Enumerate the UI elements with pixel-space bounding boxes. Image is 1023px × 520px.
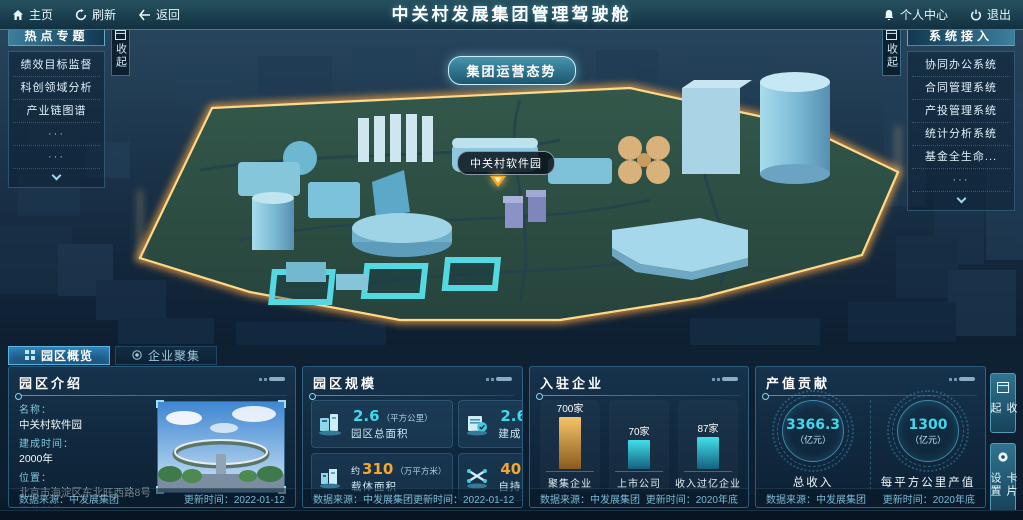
bar-value-label: 700家 (557, 400, 584, 415)
field-value: 中关村软件园 (19, 417, 147, 432)
tab-label: 企业聚集 (148, 347, 200, 364)
gauge-total-revenue: 3366.3 （亿元） 总收入 (756, 400, 870, 490)
park-name-tag[interactable]: 中关村软件园 (457, 151, 555, 175)
chevron-down-icon (956, 193, 966, 203)
gauge-ring: 3366.3 （亿元） (782, 400, 844, 462)
bar-baseline (615, 471, 663, 472)
panel-header-decoration (486, 377, 512, 381)
power-icon (970, 9, 982, 21)
bar (697, 437, 719, 469)
system-item[interactable]: 基金全生命... (912, 146, 1010, 169)
collapse-label: 收起 (113, 43, 129, 69)
system-access-expand-button[interactable] (912, 192, 1010, 208)
collapse-label: 收起 (884, 43, 900, 69)
stat-value: 2.6 (353, 407, 380, 425)
stat-unit: （万平方米） (395, 465, 446, 477)
map-3d-scene[interactable]: 集团运营态势 中关村软件园 (0, 30, 1023, 346)
dock-collapse-label: 收起 (987, 402, 1019, 426)
panel-title: 园区规模 (313, 376, 377, 391)
bar-column[interactable]: 70家上市公司 (609, 400, 669, 492)
panel-title: 产值贡献 (766, 376, 830, 391)
system-item-placeholder: ··· (912, 169, 1010, 192)
enterprises-bar-chart: 700家聚集企业70家上市公司87家收入过亿企业 (530, 396, 748, 492)
panel-header-decoration (949, 377, 975, 381)
carrier-area-icon (318, 465, 344, 489)
stat-value: 40 (500, 460, 521, 478)
output-value-panel: 产值贡献 3366.3 （亿元） 总收入 1300 （亿元） (755, 366, 986, 508)
dock-collapse-button[interactable]: 收起 (990, 373, 1016, 433)
data-source: 数据来源：中发展集团 (540, 491, 640, 506)
back-arrow-icon (138, 9, 151, 21)
gauge-value: 3366.3 (786, 417, 840, 433)
gauge-unit: （亿元） (910, 433, 946, 446)
system-access-collapse-button[interactable]: 收起 (882, 25, 901, 76)
home-button[interactable]: 主页 (12, 6, 53, 23)
data-source: 数据来源：中发展集团 (19, 491, 119, 506)
refresh-icon (75, 9, 87, 21)
group-operation-situation-button[interactable]: 集团运营态势 (447, 56, 575, 85)
home-label: 主页 (29, 6, 53, 23)
hot-topic-item[interactable]: 科创领域分析 (13, 77, 100, 100)
panel-title-rule (538, 395, 740, 396)
built-area-icon (465, 412, 491, 436)
resident-enterprises-panel: 入驻企业 700家聚集企业70家上市公司87家收入过亿企业 数据来源：中发展集团… (529, 366, 749, 508)
logout-label: 退出 (987, 6, 1011, 23)
bar-column[interactable]: 87家收入过亿企业 (678, 400, 738, 492)
home-icon (12, 9, 24, 21)
data-source: 数据来源：中发展集团 (766, 491, 866, 506)
hot-topic-placeholder: ··· (13, 123, 100, 146)
scale-stats-grid: 2.6 （平方公里） 园区总面积 2.6 （平方公里） 建 (303, 396, 522, 501)
park-photo (157, 401, 285, 493)
panel-title-rule (17, 395, 287, 396)
bar-value-label: 70家 (628, 423, 649, 438)
logout-button[interactable]: 退出 (970, 6, 1011, 23)
stat-total-area: 2.6 （平方公里） 园区总面积 (311, 400, 453, 448)
dock-tabs: 园区概览 企业聚集 (8, 346, 217, 365)
collapse-panel-icon (115, 30, 126, 40)
update-time: 更新时间：2020年底 (646, 491, 738, 506)
output-gauges: 3366.3 （亿元） 总收入 1300 （亿元） 每平方公里产值 (756, 396, 985, 490)
data-source: 数据来源：中发展集团 (313, 491, 413, 506)
bottom-dock: 园区概览 企业聚集 园区介绍 名称： 中关村软件园 建成时间： (0, 345, 1023, 520)
page-title: 中关村发展集团管理驾驶舱 (392, 0, 632, 30)
stat-value: 310 (362, 460, 393, 478)
bell-icon (883, 9, 895, 21)
field-label: 名称： (19, 401, 147, 416)
bar-value-label: 87家 (697, 420, 718, 435)
panel-title: 园区介绍 (19, 376, 83, 391)
tab-enterprise-cluster[interactable]: 企业聚集 (115, 346, 217, 365)
target-circle-icon (132, 349, 142, 363)
refresh-label: 刷新 (92, 6, 116, 23)
update-time: 更新时间：2022-01-12 (184, 491, 285, 506)
bar-column[interactable]: 700家聚集企业 (540, 400, 600, 492)
panel-header-decoration (712, 377, 738, 381)
panel-header-decoration (259, 377, 285, 381)
field-label: 位置： (19, 469, 147, 484)
bar (559, 417, 581, 469)
bar-baseline (546, 471, 594, 472)
park-intro-panel: 园区介绍 名称： 中关村软件园 建成时间： 2000年 位置： 北京市海淀区东北… (8, 366, 296, 508)
system-item[interactable]: 产投管理系统 (912, 100, 1010, 123)
panel-title-rule (311, 395, 514, 396)
top-nav-left: 主页 刷新 返回 (12, 6, 180, 23)
update-time: 更新时间：2022-01-12 (413, 491, 514, 506)
self-held-area-icon (465, 465, 491, 489)
gauge-output-per-sqkm: 1300 （亿元） 每平方公里产值 (870, 400, 985, 490)
park-scale-panel: 园区规模 2.6 （平方公里） 园区总面积 (302, 366, 523, 508)
field-value: 2000年 (19, 451, 147, 466)
chevron-down-icon (52, 170, 62, 180)
top-bar: 主页 刷新 返回 中关村发展集团管理驾驶舱 个人中心 (0, 0, 1023, 30)
gauge-ring: 1300 （亿元） (897, 400, 959, 462)
system-item[interactable]: 合同管理系统 (912, 77, 1010, 100)
photo-corner (278, 400, 286, 408)
bottom-strip (0, 510, 1023, 520)
gauge-unit: （亿元） (795, 433, 831, 446)
hot-topics-expand-button[interactable] (13, 169, 100, 185)
system-access-panel: 收起 系统接入 协同办公系统 合同管理系统 产投管理系统 统计分析系统 基金全生… (876, 25, 1015, 211)
stat-label: 建成区面积 (498, 426, 523, 441)
field-label: 建成时间： (19, 435, 147, 450)
card-settings-label: 卡片设置 (987, 472, 1019, 506)
hot-topic-item[interactable]: 绩效目标监督 (13, 54, 100, 77)
system-item[interactable]: 协同办公系统 (912, 54, 1010, 77)
hot-topic-placeholder: ··· (13, 146, 100, 169)
tab-park-overview[interactable]: 园区概览 (8, 346, 110, 365)
stat-value: 2.6 (500, 407, 523, 425)
stat-unit: （平方公里） (382, 412, 433, 424)
tab-label: 园区概览 (41, 347, 93, 364)
hot-topics-panel: 热点专题 绩效目标监督 科创领域分析 产业链图谱 ··· ··· 收起 (8, 25, 136, 188)
dashboard-root: 主页 刷新 返回 中关村发展集团管理驾驶舱 个人中心 (0, 0, 1023, 520)
park-location-marker[interactable] (490, 176, 506, 187)
update-time: 更新时间：2020年底 (883, 491, 975, 506)
bar (628, 440, 650, 469)
back-button[interactable]: 返回 (138, 6, 180, 23)
refresh-button[interactable]: 刷新 (75, 6, 116, 23)
buildings-icon (318, 412, 344, 436)
hot-topics-collapse-button[interactable]: 收起 (111, 25, 130, 76)
gauge-value: 1300 (909, 417, 948, 433)
collapse-panel-icon (997, 380, 1009, 398)
system-access-list: 协同办公系统 合同管理系统 产投管理系统 统计分析系统 基金全生命... ··· (907, 51, 1015, 211)
bar-baseline (684, 471, 732, 472)
panel-title: 入驻企业 (540, 376, 604, 391)
stat-built-area: 2.6 （平方公里） 建成区面积 (458, 400, 523, 448)
stat-label: 园区总面积 (351, 426, 433, 441)
top-nav-right: 个人中心 退出 (883, 6, 1011, 23)
back-label: 返回 (156, 6, 180, 23)
card-settings-button[interactable]: 卡片设置 (990, 443, 1016, 513)
hot-topic-item[interactable]: 产业链图谱 (13, 100, 100, 123)
personal-center-label: 个人中心 (900, 6, 948, 23)
stat-prefix: 约 (351, 464, 360, 477)
grid-icon (25, 349, 35, 363)
photo-corner (156, 400, 164, 408)
personal-center-button[interactable]: 个人中心 (883, 6, 948, 23)
system-item[interactable]: 统计分析系统 (912, 123, 1010, 146)
hot-topics-list: 绩效目标监督 科创领域分析 产业链图谱 ··· ··· (8, 51, 105, 188)
gear-icon (997, 450, 1009, 468)
collapse-panel-icon (886, 30, 897, 40)
